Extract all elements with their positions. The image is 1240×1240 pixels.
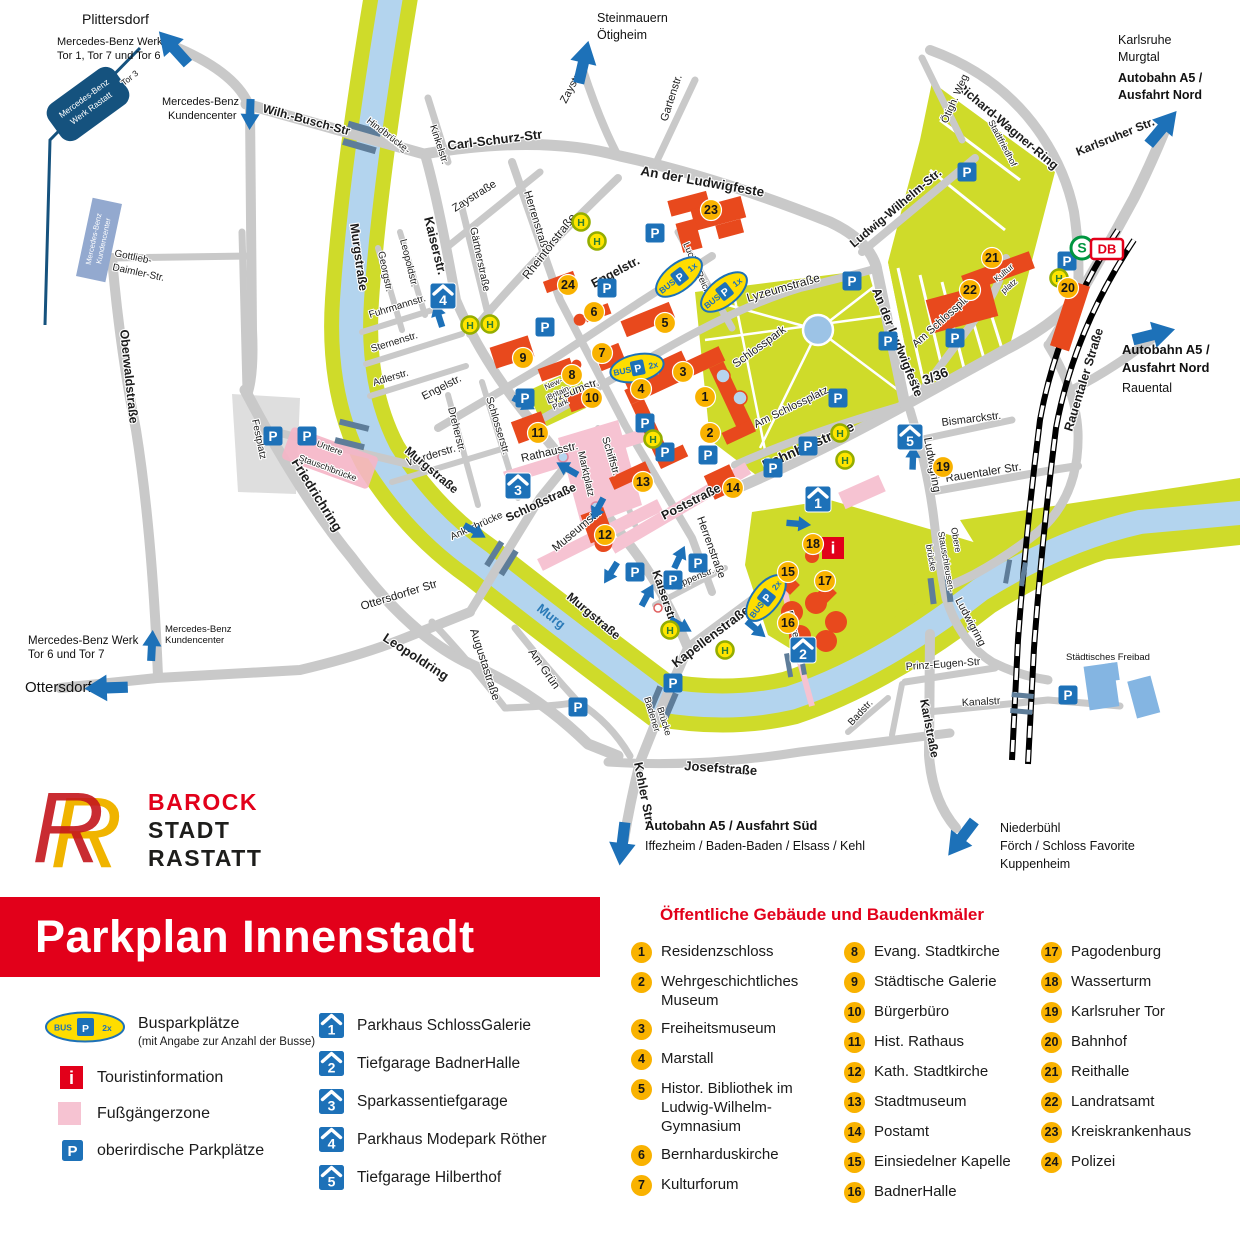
building-item-1: 1Residenzschloss bbox=[631, 942, 843, 963]
svg-text:Karlsruhe: Karlsruhe bbox=[1118, 33, 1172, 47]
marker-5: 5 bbox=[655, 313, 676, 334]
legend-parking-label: oberirdische Parkplätze bbox=[97, 1142, 264, 1160]
barock-stadt-rastatt-logo: R R BAROCK STADT RASTATT bbox=[30, 772, 310, 882]
marker-1: 1 bbox=[695, 387, 716, 408]
building-item-7: 7Kulturforum bbox=[631, 1175, 843, 1196]
svg-text:Rauental: Rauental bbox=[1122, 381, 1172, 395]
svg-text:i: i bbox=[69, 1068, 74, 1088]
building-item-17: 17Pagodenburg bbox=[1041, 942, 1226, 963]
db-icon: DB bbox=[1091, 239, 1123, 259]
buildings-title: Öffentliche Gebäude und Baudenkmäler bbox=[660, 905, 984, 925]
svg-text:24: 24 bbox=[561, 278, 575, 292]
marker-21: 21 bbox=[982, 248, 1003, 269]
logo-line3: RASTATT bbox=[148, 845, 262, 871]
parkhaus-1: 1 bbox=[805, 486, 831, 512]
logo-line2: STADT bbox=[148, 817, 230, 843]
svg-text:10: 10 bbox=[585, 391, 599, 405]
marker-8: 8 bbox=[562, 365, 583, 386]
mercedes-area: Mercedes-Benz Werk Rastatt Mercedes-Benz… bbox=[42, 48, 140, 325]
svg-text:Steinmauern: Steinmauern bbox=[597, 11, 668, 25]
svg-text:2: 2 bbox=[707, 426, 714, 440]
legend-bus-note: (mit Angabe zur Anzahl der Busse) bbox=[138, 1036, 315, 1048]
marker-17: 17 bbox=[815, 571, 836, 592]
marker-19: 19 bbox=[933, 457, 954, 478]
svg-text:4: 4 bbox=[638, 382, 645, 396]
building-item-4: 4Marstall bbox=[631, 1049, 843, 1070]
parkplan-page: P H bbox=[0, 0, 1240, 1240]
building-item-5: 5Histor. Bibliothek im Ludwig-Wilhelm-Gy… bbox=[631, 1079, 843, 1136]
svg-text:Plittersdorf: Plittersdorf bbox=[82, 11, 149, 27]
legend-parking-icon: P bbox=[62, 1140, 83, 1166]
legend-parkhaus-5: 5 Tiefgarage Hilberthof bbox=[318, 1164, 501, 1191]
svg-text:Karlstraße: Karlstraße bbox=[917, 698, 942, 759]
marker-23: 23 bbox=[701, 200, 722, 221]
svg-text:P: P bbox=[67, 1143, 77, 1160]
legend-parkhaus-1: 1 Parkhaus SchlossGalerie bbox=[318, 1012, 531, 1039]
building-item-21: 21Reithalle bbox=[1041, 1062, 1226, 1083]
building-item-2: 2Wehrgeschichtliches Museum bbox=[631, 972, 843, 1010]
svg-text:i: i bbox=[831, 539, 836, 558]
svg-text:21: 21 bbox=[985, 251, 999, 265]
legend-pedestrian-label: Fußgängerzone bbox=[97, 1105, 210, 1123]
building-item-11: 11Hist. Rathaus bbox=[844, 1032, 1039, 1053]
svg-text:Murgtal: Murgtal bbox=[1118, 50, 1160, 64]
logo-line1: BAROCK bbox=[148, 789, 258, 815]
svg-text:6: 6 bbox=[591, 305, 598, 319]
svg-text:2: 2 bbox=[328, 1060, 336, 1076]
svg-text:Förch / Schloss Favorite: Förch / Schloss Favorite bbox=[1000, 839, 1135, 853]
svg-text:22: 22 bbox=[963, 283, 977, 297]
svg-text:15: 15 bbox=[781, 565, 795, 579]
svg-text:Ötigheim: Ötigheim bbox=[597, 28, 647, 42]
svg-text:5: 5 bbox=[328, 1174, 336, 1190]
svg-text:1: 1 bbox=[702, 390, 709, 404]
svg-text:17: 17 bbox=[818, 574, 832, 588]
marker-3: 3 bbox=[673, 362, 694, 383]
marker-13: 13 bbox=[633, 472, 654, 493]
legend-tourist-label: Touristinformation bbox=[97, 1069, 223, 1087]
svg-text:7: 7 bbox=[599, 346, 606, 360]
svg-text:Autobahn A5 /: Autobahn A5 / bbox=[1118, 71, 1203, 85]
parkhaus-3: 3 bbox=[505, 473, 531, 499]
building-item-22: 22Landratsamt bbox=[1041, 1092, 1226, 1113]
svg-text:1: 1 bbox=[814, 495, 822, 511]
svg-text:P: P bbox=[82, 1023, 89, 1035]
svg-text:12: 12 bbox=[598, 528, 612, 542]
svg-text:14: 14 bbox=[726, 481, 740, 495]
svg-text:Karlsruher Str.: Karlsruher Str. bbox=[1074, 115, 1157, 159]
svg-text:8: 8 bbox=[569, 368, 576, 382]
building-item-6: 6Bernharduskirche bbox=[631, 1145, 843, 1166]
svg-text:S: S bbox=[1077, 240, 1086, 256]
buildings-column-1: 1Residenzschloss 2Wehrgeschichtliches Mu… bbox=[631, 942, 843, 1196]
marker-24: 24 bbox=[558, 275, 579, 296]
svg-text:4: 4 bbox=[328, 1136, 336, 1152]
legend-parkhaus-4: 4 Parkhaus Modepark Röther bbox=[318, 1126, 547, 1153]
svg-text:20: 20 bbox=[1061, 281, 1075, 295]
marker-14: 14 bbox=[723, 478, 744, 499]
svg-text:Ausfahrt Nord: Ausfahrt Nord bbox=[1122, 360, 1209, 375]
marker-12: 12 bbox=[595, 525, 616, 546]
svg-text:19: 19 bbox=[936, 460, 950, 474]
legend-bus-icon: BUS P 2x bbox=[44, 1011, 128, 1048]
building-item-14: 14Postamt bbox=[844, 1122, 1039, 1143]
legend-parkhaus-2: 2 Tiefgarage BadnerHalle bbox=[318, 1050, 520, 1077]
building-item-16: 16BadnerHalle bbox=[844, 1182, 1039, 1203]
marker-16: 16 bbox=[778, 613, 799, 634]
svg-text:5: 5 bbox=[662, 316, 669, 330]
marker-18: 18 bbox=[803, 534, 824, 555]
svg-text:Kanalstr: Kanalstr bbox=[962, 695, 1002, 709]
sbahn-icon: S bbox=[1071, 237, 1093, 259]
svg-text:4: 4 bbox=[439, 292, 447, 308]
svg-text:3: 3 bbox=[680, 365, 687, 379]
buildings-column-3: 17Pagodenburg 18Wasserturm 19Karlsruher … bbox=[1041, 942, 1226, 1173]
svg-text:18: 18 bbox=[806, 537, 820, 551]
parkhaus-5: 5 bbox=[897, 424, 923, 450]
parkhaus-2: 2 bbox=[790, 637, 816, 663]
svg-text:2: 2 bbox=[799, 646, 807, 662]
svg-text:Mercedes-Benz Werk: Mercedes-Benz Werk bbox=[28, 635, 139, 647]
marker-2: 2 bbox=[700, 423, 721, 444]
svg-text:Ottersdorf: Ottersdorf bbox=[25, 679, 93, 696]
legend-tourist-icon: i bbox=[60, 1066, 83, 1094]
svg-text:Gärtnerstraße: Gärtnerstraße bbox=[467, 226, 492, 293]
svg-text:Tor 1, Tor 7 und Tor 6: Tor 1, Tor 7 und Tor 6 bbox=[57, 50, 161, 62]
svg-text:16: 16 bbox=[781, 616, 795, 630]
parkhaus-4: 4 bbox=[430, 283, 456, 309]
svg-text:1: 1 bbox=[328, 1022, 336, 1038]
legend-pedestrian-swatch bbox=[58, 1102, 81, 1125]
svg-text:Tor 3: Tor 3 bbox=[119, 68, 140, 88]
svg-text:11: 11 bbox=[531, 426, 544, 440]
marker-15: 15 bbox=[778, 562, 799, 583]
marker-4: 4 bbox=[631, 379, 652, 400]
svg-text:Daimler-Str.: Daimler-Str. bbox=[111, 262, 165, 284]
svg-text:Kundencenter: Kundencenter bbox=[168, 110, 237, 122]
page-title: Parkplan Innenstadt bbox=[35, 911, 475, 963]
svg-text:Niederbühl: Niederbühl bbox=[1000, 821, 1060, 835]
svg-text:2x: 2x bbox=[102, 1023, 112, 1033]
building-item-15: 15Einsiedelner Kapelle bbox=[844, 1152, 1039, 1173]
svg-text:Leopoldstr.: Leopoldstr. bbox=[397, 238, 420, 288]
city-map: P H bbox=[0, 0, 1240, 897]
svg-text:Städtisches Freibad: Städtisches Freibad bbox=[1066, 652, 1150, 663]
building-item-18: 18Wasserturm bbox=[1041, 972, 1226, 993]
logo-monogram-red: R bbox=[32, 772, 104, 882]
svg-text:Kuppenheim: Kuppenheim bbox=[1000, 857, 1070, 871]
marker-9: 9 bbox=[513, 348, 534, 369]
building-item-12: 12Kath. Stadtkirche bbox=[844, 1062, 1039, 1083]
building-item-23: 23Kreiskrankenhaus bbox=[1041, 1122, 1226, 1143]
svg-text:Tor 6 und Tor 7: Tor 6 und Tor 7 bbox=[28, 649, 105, 661]
svg-text:Oberwaldstraße: Oberwaldstraße bbox=[117, 329, 141, 424]
marker-10: 10 bbox=[582, 388, 603, 409]
svg-text:23: 23 bbox=[704, 203, 718, 217]
svg-text:BUS: BUS bbox=[54, 1023, 72, 1033]
svg-text:Iffezheim / Baden-Baden / Elsa: Iffezheim / Baden-Baden / Elsass / Kehl bbox=[645, 839, 865, 853]
buildings-column-2: 8Evang. Stadtkirche 9Städtische Galerie … bbox=[844, 942, 1039, 1203]
svg-text:Mercedes-Benz Werk: Mercedes-Benz Werk bbox=[57, 36, 163, 48]
svg-text:5: 5 bbox=[906, 433, 914, 449]
svg-text:13: 13 bbox=[636, 475, 650, 489]
building-item-10: 10Bürgerbüro bbox=[844, 1002, 1039, 1023]
building-item-20: 20Bahnhof bbox=[1041, 1032, 1226, 1053]
legend-bus-label: Busparkplätze bbox=[138, 1015, 239, 1033]
tourist-info-icon: i bbox=[822, 537, 844, 559]
building-item-3: 3Freiheitsmuseum bbox=[631, 1019, 843, 1040]
building-item-19: 19Karlsruher Tor bbox=[1041, 1002, 1226, 1023]
svg-text:Wilh.-Busch-Str: Wilh.-Busch-Str bbox=[261, 101, 352, 138]
building-item-13: 13Stadtmuseum bbox=[844, 1092, 1039, 1113]
building-item-8: 8Evang. Stadtkirche bbox=[844, 942, 1039, 963]
svg-text:Mercedes-Benz: Mercedes-Benz bbox=[162, 96, 239, 108]
building-item-24: 24Polizei bbox=[1041, 1152, 1226, 1173]
svg-text:Mercedes-Benz: Mercedes-Benz bbox=[165, 624, 232, 635]
marker-6: 6 bbox=[584, 302, 605, 323]
marker-20: 20 bbox=[1058, 278, 1079, 299]
legend-parkhaus-3: 3 Sparkassentiefgarage bbox=[318, 1088, 508, 1115]
marker-22: 22 bbox=[960, 280, 981, 301]
building-item-9: 9Städtische Galerie bbox=[844, 972, 1039, 993]
svg-text:Ausfahrt Nord: Ausfahrt Nord bbox=[1118, 88, 1202, 102]
marker-7: 7 bbox=[592, 343, 613, 364]
title-banner: Parkplan Innenstadt bbox=[0, 897, 600, 977]
svg-text:9: 9 bbox=[520, 351, 527, 365]
freibad-buildings bbox=[1084, 662, 1161, 718]
svg-text:3: 3 bbox=[328, 1098, 336, 1114]
svg-text:3: 3 bbox=[514, 482, 522, 498]
marker-11: 11 bbox=[528, 423, 549, 444]
svg-text:DB: DB bbox=[1098, 242, 1117, 257]
svg-text:Kundencenter: Kundencenter bbox=[165, 635, 224, 646]
svg-text:Autobahn A5 / Ausfahrt Süd: Autobahn A5 / Ausfahrt Süd bbox=[645, 818, 817, 833]
